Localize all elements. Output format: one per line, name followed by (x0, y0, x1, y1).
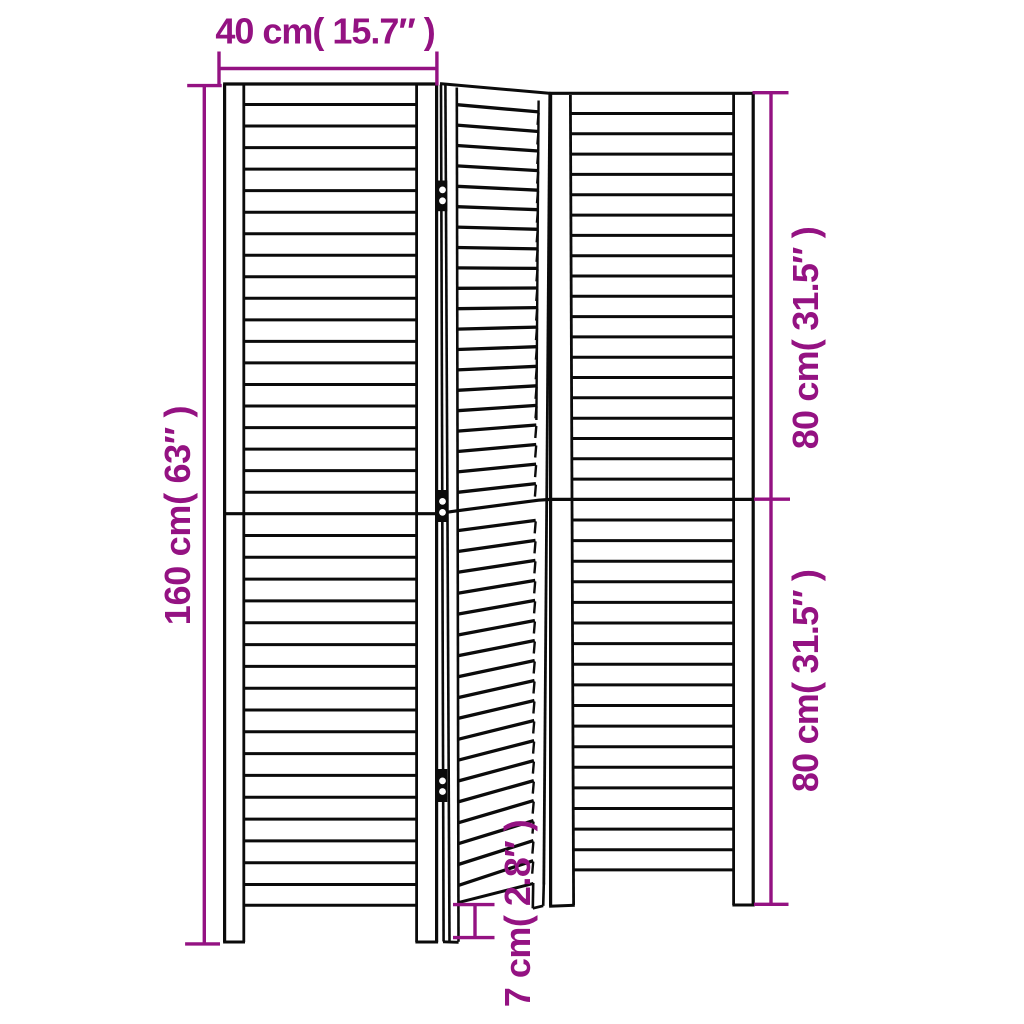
svg-text:160 cm( 63″ ): 160 cm( 63″ ) (157, 406, 198, 625)
svg-text:7 cm( 2.8″ ): 7 cm( 2.8″ ) (497, 820, 538, 1007)
svg-text:80 cm( 31.5″ ): 80 cm( 31.5″ ) (785, 570, 826, 792)
svg-text:80 cm( 31.5″ ): 80 cm( 31.5″ ) (785, 227, 826, 449)
svg-text:40 cm( 15.7″ ): 40 cm( 15.7″ ) (215, 11, 434, 52)
